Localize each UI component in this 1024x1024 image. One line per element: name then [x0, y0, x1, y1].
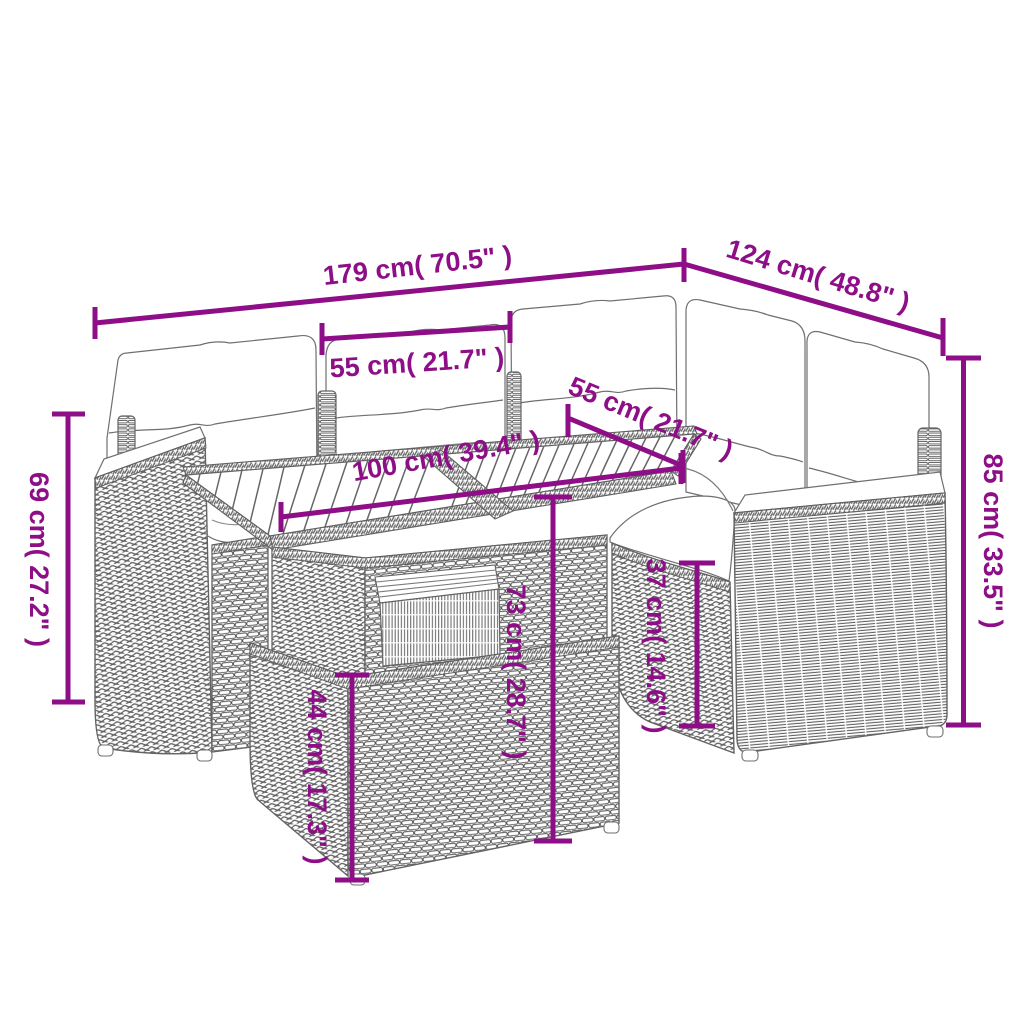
- svg-text:85 cm( 33.5" ): 85 cm( 33.5" ): [978, 454, 1008, 629]
- svg-text:37 cm( 14.6" ): 37 cm( 14.6" ): [641, 559, 671, 734]
- svg-text:69 cm( 27.2" ): 69 cm( 27.2" ): [24, 472, 54, 647]
- svg-text:73 cm( 28.7" ): 73 cm( 28.7" ): [501, 585, 531, 760]
- svg-text:44 cm( 17.3" ): 44 cm( 17.3" ): [302, 690, 332, 865]
